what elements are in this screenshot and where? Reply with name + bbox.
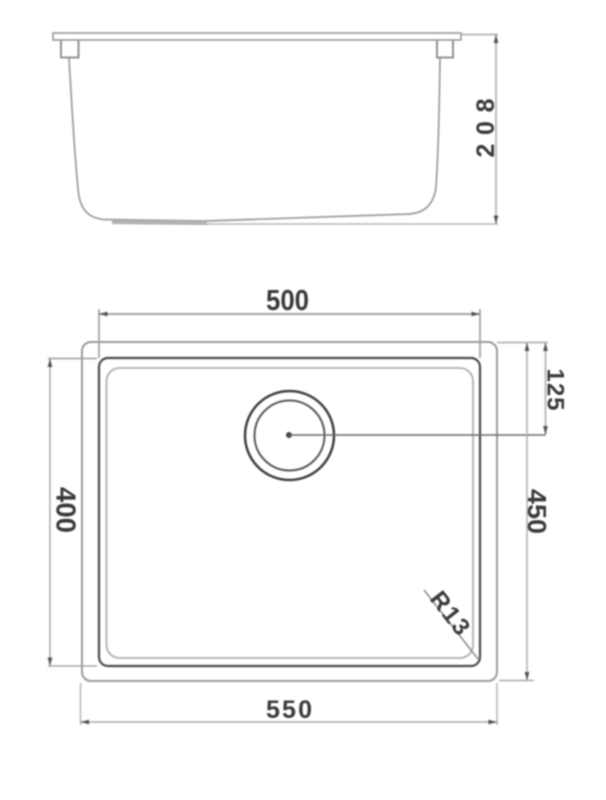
svg-text:550: 550 — [266, 696, 312, 724]
svg-text:400: 400 — [51, 487, 82, 533]
svg-text:125: 125 — [542, 369, 569, 411]
svg-text:500: 500 — [266, 285, 309, 317]
svg-text:208: 208 — [472, 98, 500, 157]
svg-text:450: 450 — [522, 489, 552, 534]
